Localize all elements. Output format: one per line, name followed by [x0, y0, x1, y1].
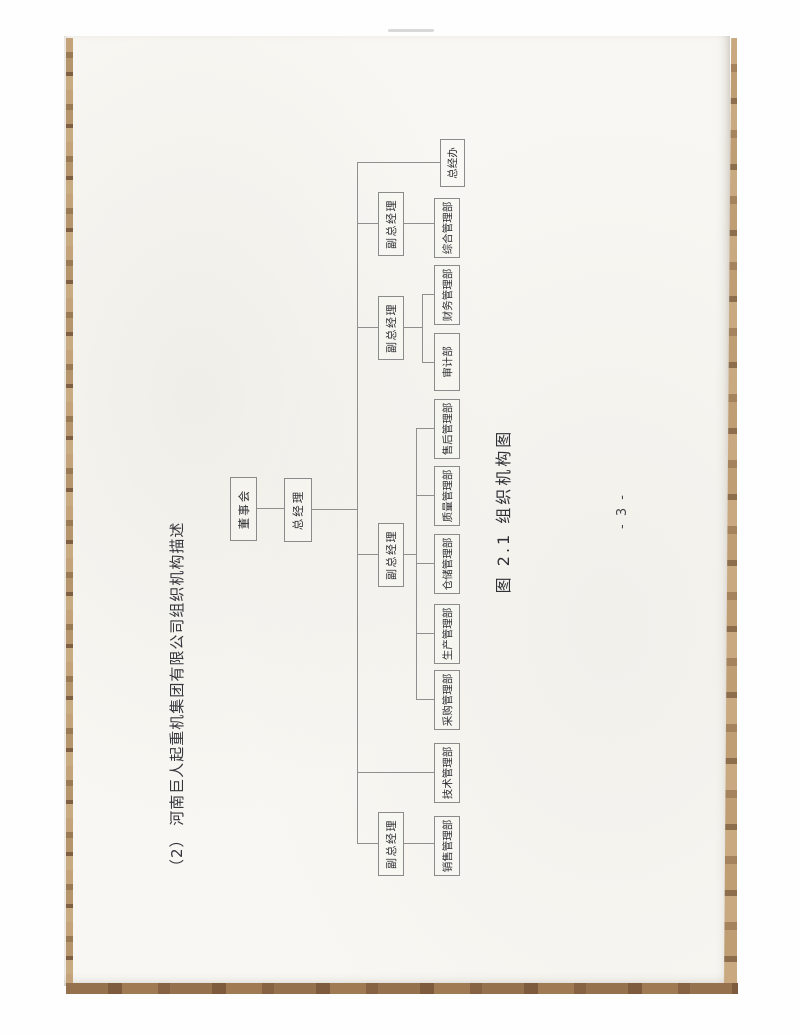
wood-edge-left — [66, 38, 73, 986]
connector — [422, 294, 434, 295]
connector — [404, 223, 434, 224]
connector — [416, 633, 434, 634]
page-number: - 3 - — [615, 36, 630, 986]
connector — [404, 554, 416, 555]
connector — [357, 223, 378, 224]
connector — [416, 699, 434, 700]
connector — [416, 428, 434, 429]
connector-trunk — [357, 163, 358, 844]
connector — [404, 843, 434, 844]
connector — [257, 508, 284, 509]
org-box-dept-technology: 技术管理部 — [434, 743, 460, 803]
scan-smudge — [388, 29, 434, 32]
org-box-deputy-finance: 副总经理 — [378, 296, 404, 360]
connector — [357, 162, 440, 163]
org-box-dept-finance: 财务管理部 — [434, 265, 460, 325]
org-box-deputy-general-affairs: 副总经理 — [378, 192, 404, 256]
org-box-deputy-sales: 副总经理 — [378, 812, 404, 876]
paper-sheet: （2） 河南巨人起重机集团有限公司组织机构描述 董事会 总经理 副总经理 副总经… — [64, 36, 730, 986]
org-box-dept-warehouse: 仓储管理部 — [434, 534, 460, 594]
connector — [357, 772, 434, 773]
org-box-dept-comprehensive: 综合管理部 — [434, 198, 460, 258]
org-box-deputy-production: 副总经理 — [378, 523, 404, 587]
org-box-general-manager: 总经理 — [284, 478, 312, 542]
scanned-page: （2） 河南巨人起重机集团有限公司组织机构描述 董事会 总经理 副总经理 副总经… — [0, 0, 800, 1035]
figure-caption: 图 2.1 组织机构图 — [490, 36, 514, 986]
connector — [357, 327, 378, 328]
connector — [416, 563, 434, 564]
org-box-dept-sales: 销售管理部 — [434, 816, 460, 876]
connector-bar — [422, 295, 423, 363]
landscape-content: （2） 河南巨人起重机集团有限公司组织机构描述 董事会 总经理 副总经理 副总经… — [64, 36, 724, 986]
connector — [416, 495, 434, 496]
connector — [422, 362, 434, 363]
org-box-gm-office: 总经办 — [440, 139, 465, 187]
connector-bar — [416, 429, 417, 700]
org-box-dept-aftersales: 售后管理部 — [434, 399, 460, 459]
org-box-dept-audit: 审计部 — [434, 333, 460, 391]
connector — [404, 327, 422, 328]
org-box-dept-procurement: 采购管理部 — [434, 670, 460, 730]
connector — [357, 554, 378, 555]
org-box-board: 董事会 — [230, 477, 257, 541]
connector — [357, 843, 378, 844]
wood-edge-bottom — [66, 983, 738, 994]
org-box-dept-production: 生产管理部 — [434, 604, 460, 664]
org-box-dept-quality: 质量管理部 — [434, 466, 460, 526]
connector — [312, 509, 357, 510]
section-title: （2） 河南巨人起重机集团有限公司组织机构描述 — [166, 522, 187, 874]
